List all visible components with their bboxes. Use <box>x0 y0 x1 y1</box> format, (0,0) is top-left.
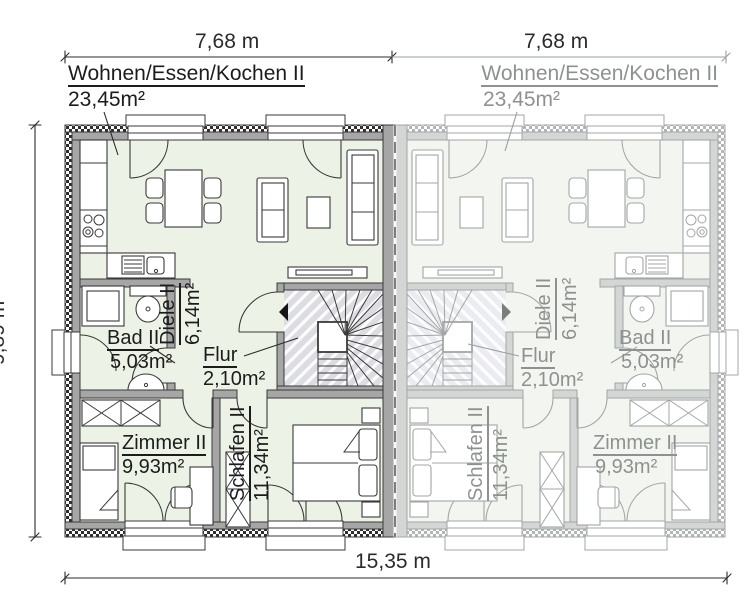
label-left-living-area: 23,45m² <box>68 89 145 111</box>
left-unit-plan <box>52 115 395 550</box>
dimension-width-left: 7,68 m <box>195 31 259 53</box>
dimension-total-width: 15,35 m <box>355 551 431 573</box>
floor-plan-page: 7,68 m 7,68 m 9,89 m 15,35 m Wohnen/Esse… <box>0 0 750 609</box>
label-right-room-name: Zimmer II <box>593 432 677 456</box>
dimension-height: 9,89 m <box>0 301 9 365</box>
label-right-hall-name: Diele II <box>533 278 557 340</box>
label-left-bedroom-area: 11,34m² <box>251 429 273 501</box>
label-left-corridor-name: Flur <box>203 344 237 368</box>
label-right-bedroom-area: 11,34m² <box>490 429 512 501</box>
label-left-living-name: Wohnen/Essen/Kochen II <box>68 63 305 87</box>
label-left-bath-area: 5,03m² <box>110 351 172 373</box>
label-right-living-area: 23,45m² <box>483 89 560 111</box>
label-left-bath-name: Bad II <box>107 327 159 351</box>
dimension-width-right: 7,68 m <box>524 31 588 53</box>
label-left-hall-name: Diele II <box>157 283 181 345</box>
label-right-living-name: Wohnen/Essen/Kochen II <box>481 63 718 87</box>
label-left-hall-area: 6,14m² <box>182 283 204 345</box>
label-left-corridor-area: 2,10m² <box>203 368 265 390</box>
label-right-corridor-area: 2,10m² <box>521 369 583 391</box>
label-left-room-area: 9,93m² <box>122 456 184 478</box>
label-right-bath-area: 5,03m² <box>621 351 683 373</box>
label-right-room-area: 9,93m² <box>595 456 657 478</box>
label-left-bedroom-name: Schlafen II <box>227 406 251 501</box>
label-right-bedroom-name: Schlafen II <box>465 406 489 501</box>
label-left-room-name: Zimmer II <box>122 432 206 456</box>
label-right-hall-area: 6,14m² <box>559 278 581 340</box>
label-right-bath-name: Bad II <box>619 327 671 351</box>
label-right-corridor-name: Flur <box>521 345 555 369</box>
